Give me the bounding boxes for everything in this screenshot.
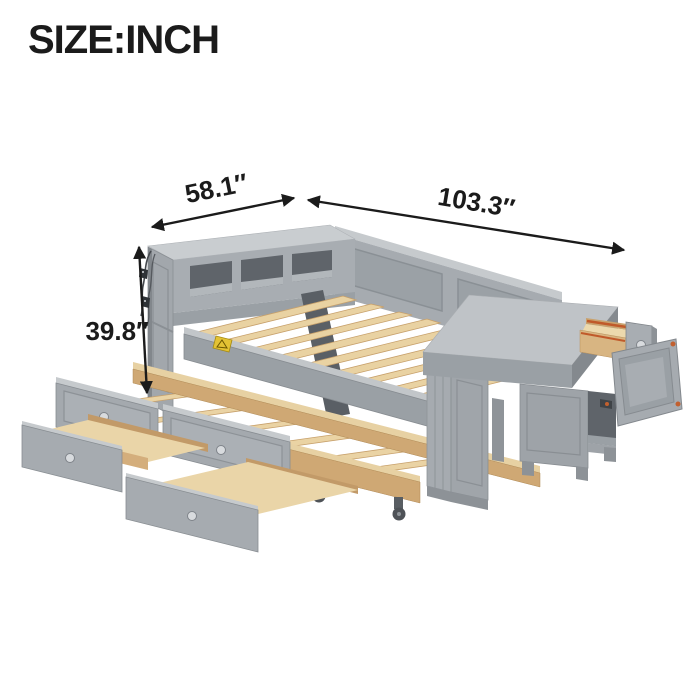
length-dimension-label: 103.3″ <box>436 181 517 223</box>
pedestal-foot <box>522 461 534 476</box>
drawer-knob <box>66 454 75 463</box>
depth-dimension-label: 58.1″ <box>182 167 250 209</box>
size-unit-title: SIZE:INCH <box>28 18 219 62</box>
depth-dimension-arrow <box>152 198 294 227</box>
pedestal-face <box>520 384 588 468</box>
pedestal-foot <box>576 466 588 481</box>
plug-pin <box>142 271 144 273</box>
bed-illustration: SIZE:INCH 58.1″ 103.3″ 39.8″ <box>0 0 700 700</box>
open-cabinet-door <box>612 339 682 426</box>
caster-bracket <box>394 497 403 509</box>
caster-hub <box>397 512 401 516</box>
pedestal-foot <box>604 447 616 462</box>
height-dimension-label: 39.8″ <box>85 316 148 346</box>
hinge-screw <box>605 402 609 406</box>
door-hinge <box>671 342 676 347</box>
footboard-and-desk-legs <box>427 364 504 510</box>
drawer-knob <box>188 512 197 521</box>
footboard-beadboard-leg <box>427 364 451 492</box>
product-dimension-diagram: SIZE:INCH 58.1″ 103.3″ 39.8″ <box>0 0 700 700</box>
plug-pin <box>144 300 146 302</box>
desk-back-leg <box>492 398 504 462</box>
door-hinge <box>676 402 681 407</box>
trundle-knob <box>217 446 226 455</box>
